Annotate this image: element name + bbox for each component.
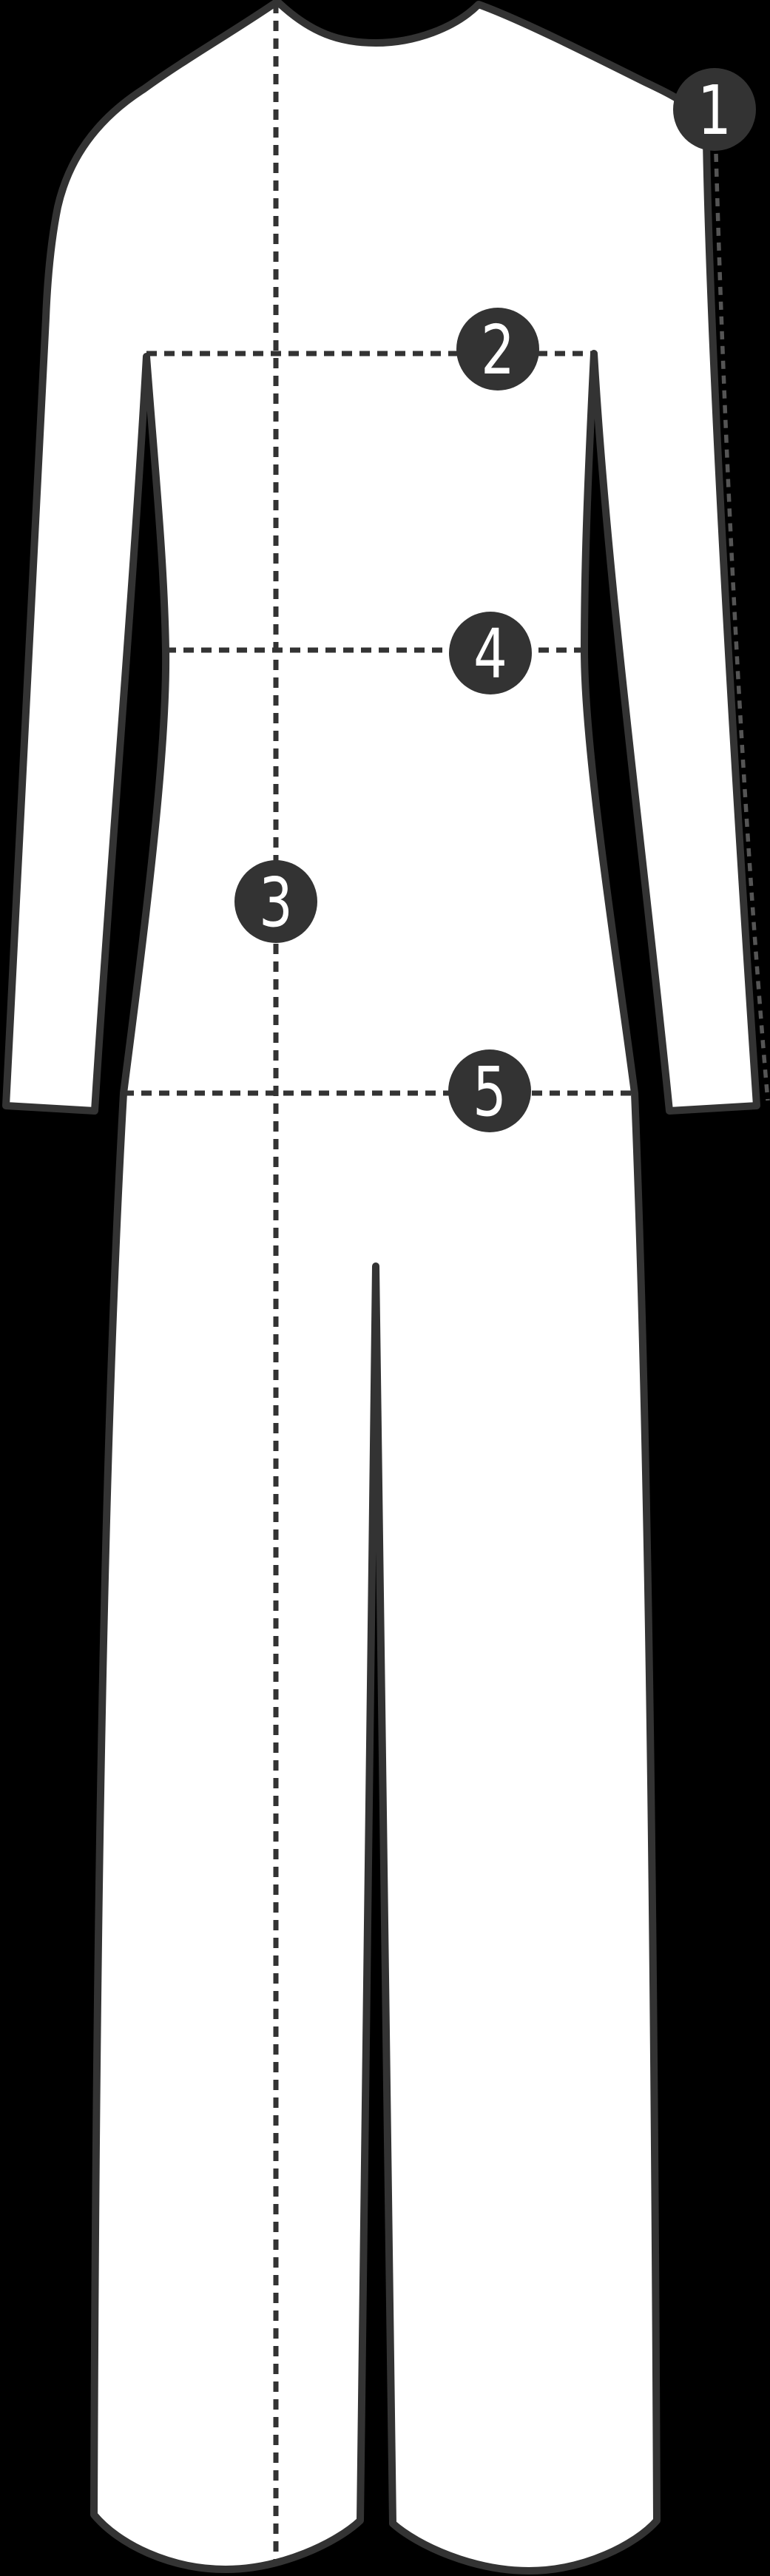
measurement-marker-2: 2 (456, 308, 539, 391)
jumpsuit-diagram-svg: 12345 (0, 0, 770, 2576)
measurement-marker-5: 5 (448, 1049, 531, 1132)
measurement-marker-3: 3 (234, 860, 317, 943)
garment-measurement-diagram: 12345 (0, 0, 770, 2576)
measurement-marker-4: 4 (449, 612, 532, 694)
marker-number: 5 (473, 1052, 507, 1132)
measurement-marker-1: 1 (673, 68, 756, 151)
marker-number: 2 (481, 311, 515, 390)
marker-number: 4 (473, 615, 507, 694)
marker-number: 3 (259, 863, 293, 942)
marker-number: 1 (698, 71, 732, 150)
